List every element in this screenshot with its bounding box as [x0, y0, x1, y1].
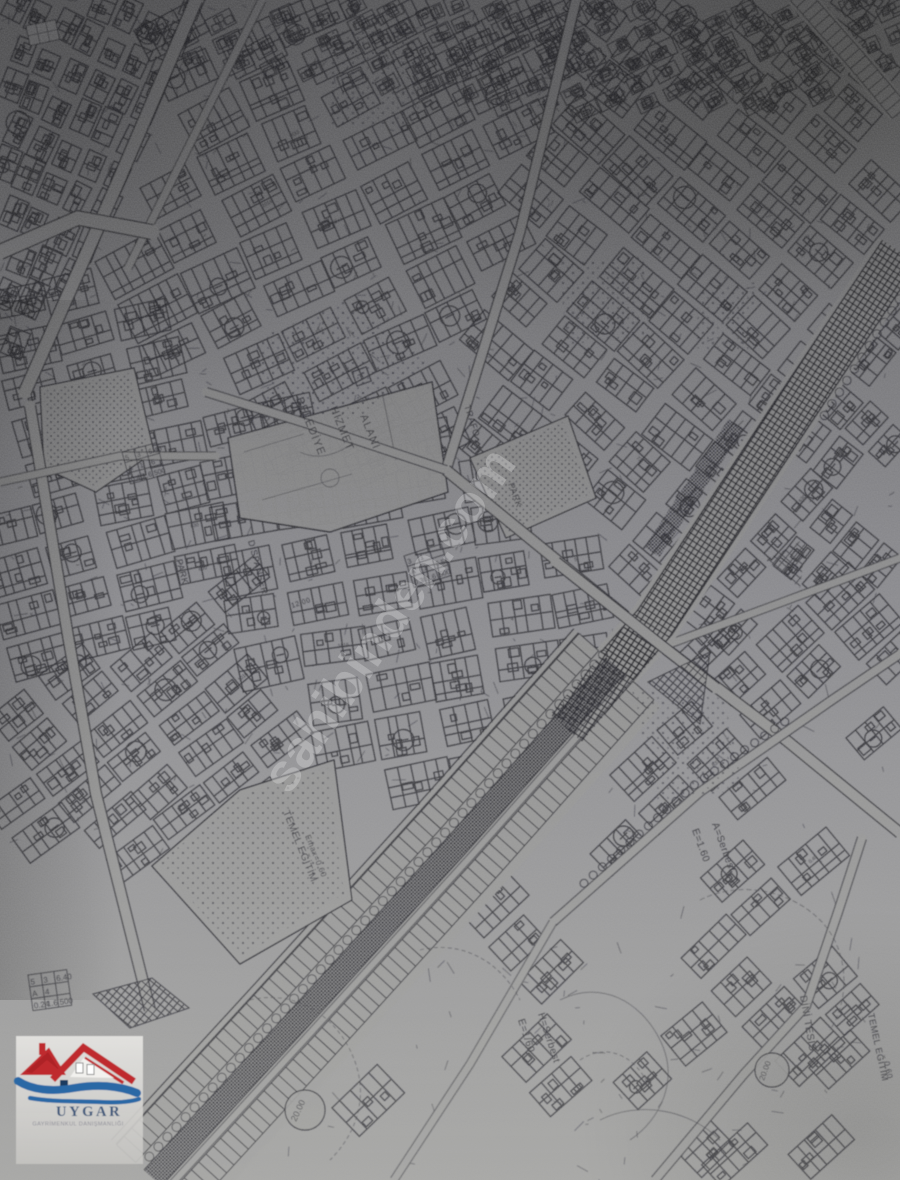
svg-text:UYGAR: UYGAR: [56, 1104, 122, 1120]
svg-text:GAYRİMENKUL DANIŞMANLIĞI: GAYRİMENKUL DANIŞMANLIĞI: [32, 1121, 123, 1128]
